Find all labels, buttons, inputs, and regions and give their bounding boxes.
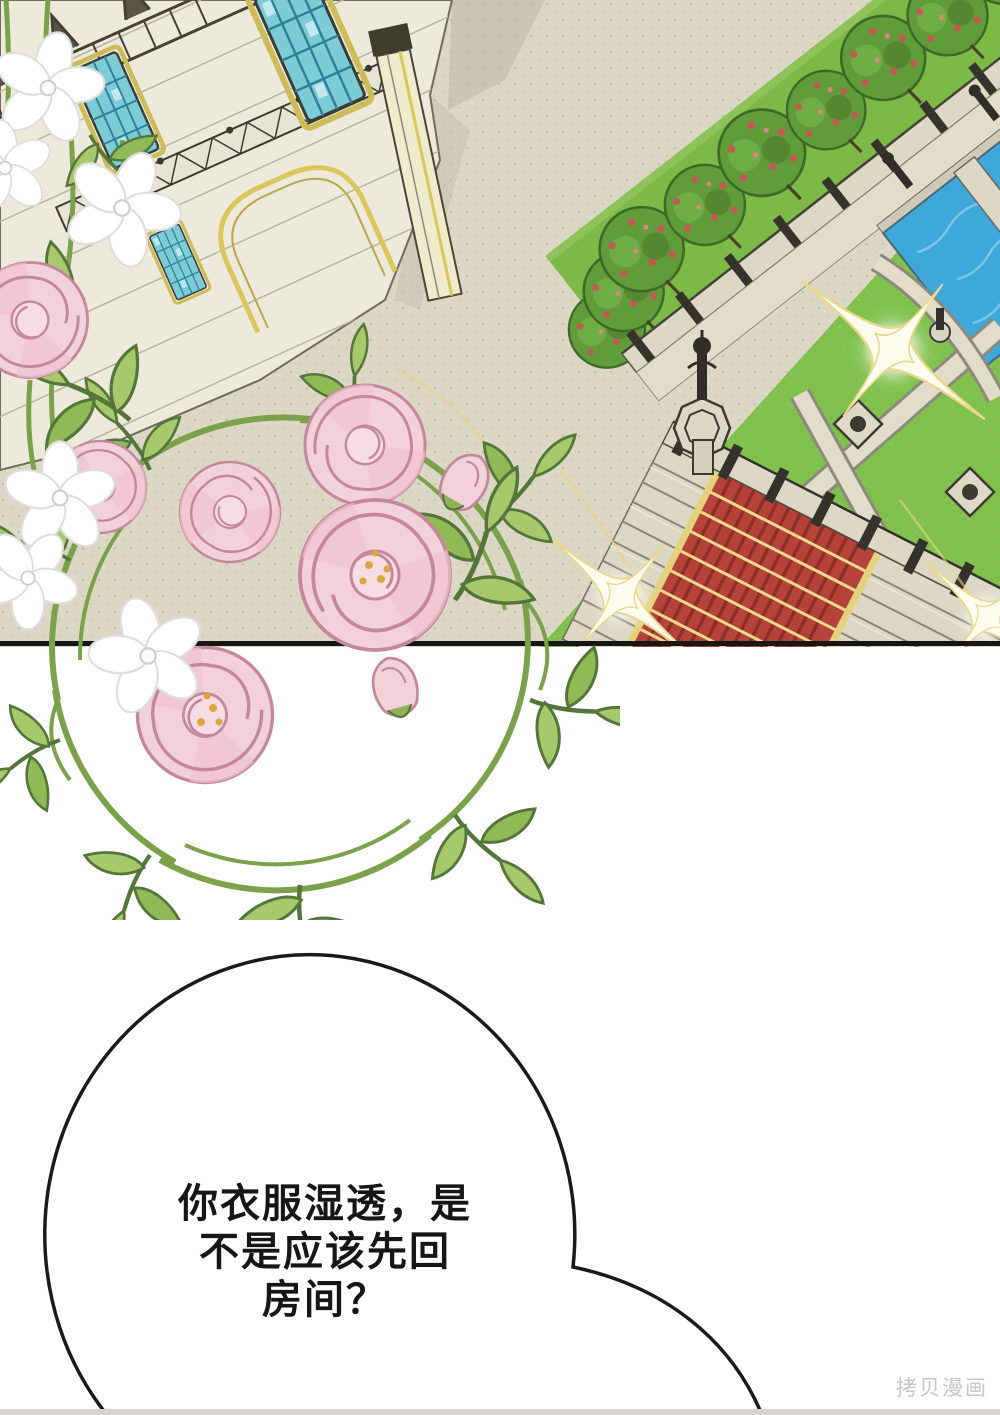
courtyard-panel: [0, 0, 1000, 647]
watermark: 拷贝漫画: [896, 1372, 988, 1402]
panel-border: [0, 641, 1000, 646]
speech-bubble-text: 你衣服湿透，是 不是应该先回 房间？: [75, 1180, 575, 1324]
next-panel-edge: [0, 1409, 1000, 1415]
dialogue-line: 不是应该先回: [75, 1228, 575, 1276]
comic-page: 你衣服湿透，是 不是应该先回 房间？ 拷贝漫画: [0, 0, 1000, 1415]
dialogue-line: 你衣服湿透，是: [75, 1180, 575, 1228]
dialogue-line: 房间？: [75, 1276, 575, 1324]
